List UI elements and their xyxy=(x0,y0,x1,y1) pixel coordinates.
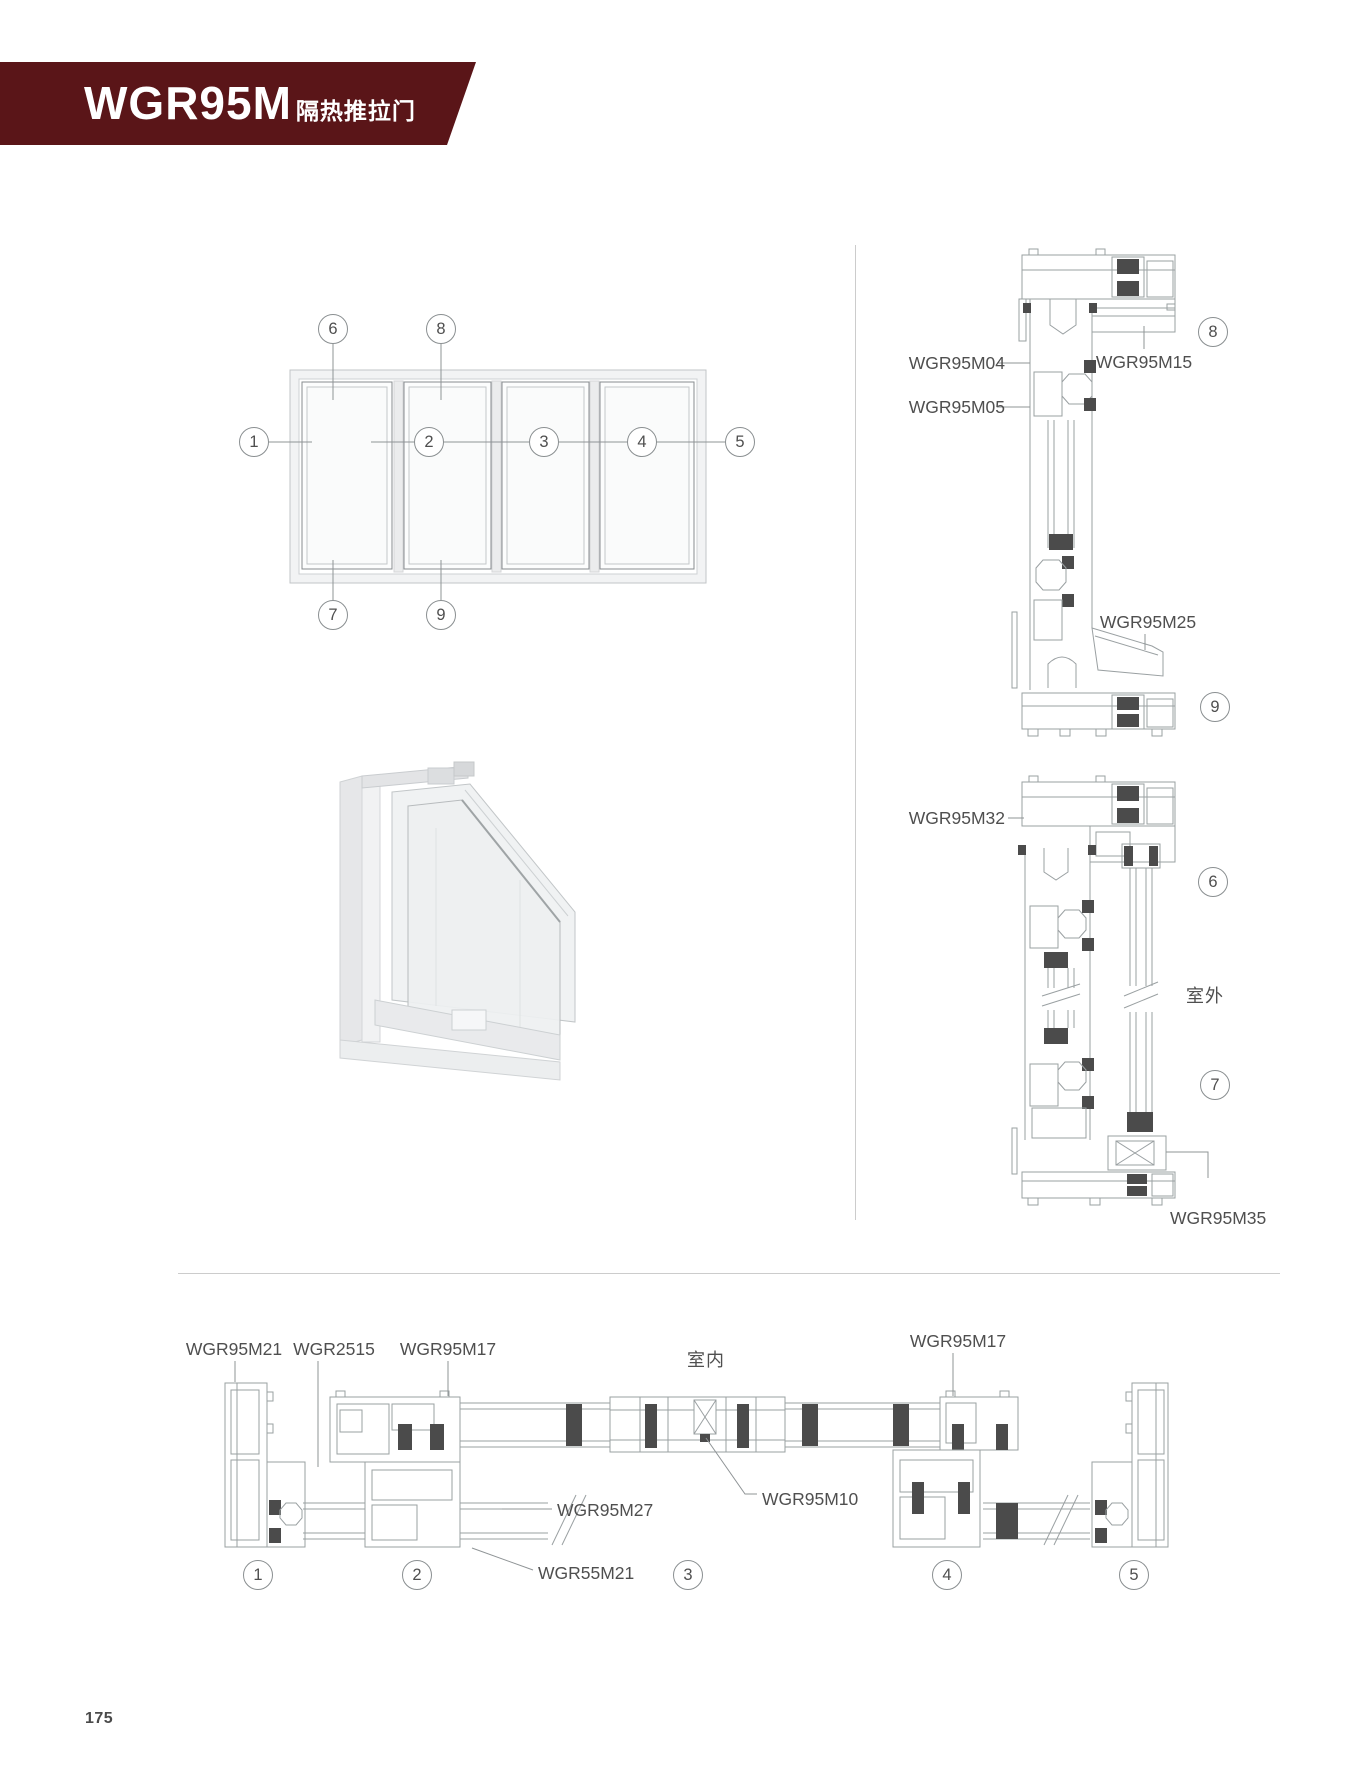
outdoor-label: 室外 xyxy=(1186,986,1246,1006)
callout-elevation-3: 3 xyxy=(529,427,559,457)
part-label-wgr95m35: WGR95M35 xyxy=(1170,1208,1300,1228)
profile-3d-render xyxy=(340,762,575,1080)
callout-elevation-8: 8 xyxy=(426,314,456,344)
head-section-drawing xyxy=(1012,249,1175,736)
catalog-page: WGR95M 隔热推拉门 xyxy=(0,0,1359,1771)
part-label-wgr95m32: WGR95M32 xyxy=(875,808,1005,828)
indoor-label: 室内 xyxy=(687,1350,747,1370)
part-label-wgr95m04: WGR95M04 xyxy=(875,353,1005,373)
elevation-drawing xyxy=(290,370,706,583)
part-label-wgr95m10: WGR95M10 xyxy=(762,1489,892,1509)
plan-section-drawing xyxy=(225,1383,1168,1547)
part-label-wgr95m25: WGR95M25 xyxy=(1083,612,1213,632)
callout-elevation-1: 1 xyxy=(239,427,269,457)
callout-section-8: 8 xyxy=(1198,317,1228,347)
callout-plan-2: 2 xyxy=(402,1560,432,1590)
callout-plan-1: 1 xyxy=(243,1560,273,1590)
callout-elevation-5: 5 xyxy=(725,427,755,457)
part-label-wgr95m27: WGR95M27 xyxy=(557,1500,687,1520)
callout-section-7: 7 xyxy=(1200,1070,1230,1100)
callout-elevation-4: 4 xyxy=(627,427,657,457)
page-number: 175 xyxy=(85,1710,113,1728)
sill-section-drawing xyxy=(1012,776,1175,1205)
callout-plan-3: 3 xyxy=(673,1560,703,1590)
callout-plan-4: 4 xyxy=(932,1560,962,1590)
part-label-wgr55m21: WGR55M21 xyxy=(538,1563,668,1583)
part-label-wgr95m17-left: WGR95M17 xyxy=(383,1339,513,1359)
part-label-wgr95m05: WGR95M05 xyxy=(875,397,1005,417)
part-label-wgr95m15: WGR95M15 xyxy=(1079,352,1209,372)
callout-plan-5: 5 xyxy=(1119,1560,1149,1590)
callout-section-6: 6 xyxy=(1198,867,1228,897)
part-label-wgr2515: WGR2515 xyxy=(269,1339,399,1359)
callout-elevation-9: 9 xyxy=(426,600,456,630)
callout-elevation-6: 6 xyxy=(318,314,348,344)
callout-elevation-2: 2 xyxy=(414,427,444,457)
callout-elevation-7: 7 xyxy=(318,600,348,630)
callout-section-9: 9 xyxy=(1200,692,1230,722)
part-label-wgr95m17-right: WGR95M17 xyxy=(893,1331,1023,1351)
